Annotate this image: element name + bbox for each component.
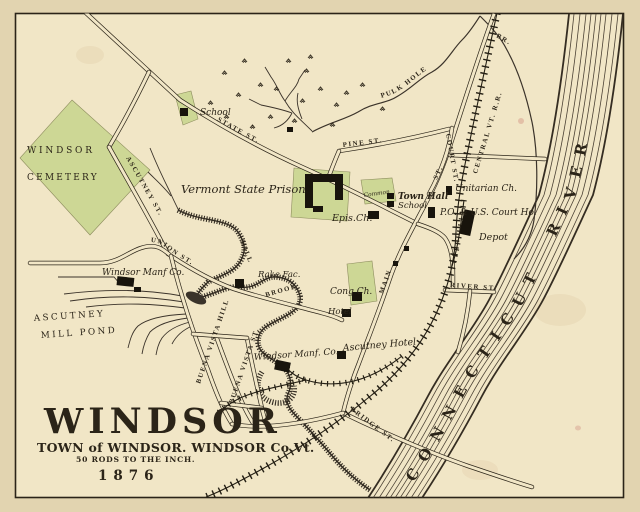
windsor-manf-north-label: Windsor Manf Co. — [102, 268, 184, 278]
post-office-courthouse-label: P.O. & U.S. Court Ho. — [439, 208, 537, 218]
school-nw-label: School — [200, 108, 231, 118]
building-rake-factory — [235, 279, 244, 288]
windsor-map-svg: CONNECTICUT RIVER PULK HOLE BR. CENTRAL … — [0, 0, 640, 512]
cemetery-label-line2: CEMETERY — [27, 173, 99, 183]
building-windsor-manf-north-2 — [134, 287, 141, 292]
building-school-nw — [180, 108, 188, 116]
cemetery-label-line1: WINDSOR — [27, 146, 95, 156]
map-page: CONNECTICUT RIVER PULK HOLE BR. CENTRAL … — [0, 0, 640, 512]
congregational-church-label: Cong Ch. — [330, 287, 372, 297]
building-small-main-2 — [393, 261, 398, 266]
unitarian-church-label: Unitarian Ch. — [455, 184, 517, 194]
depot-label: Depot — [478, 232, 508, 243]
hotel-label: Hotel — [327, 307, 352, 317]
school-label: School — [398, 201, 427, 211]
prison-label: Vermont State Prison — [181, 182, 306, 196]
map-year: 1876 — [98, 468, 160, 484]
building-small-main-1 — [404, 246, 409, 251]
building-post-office-courthouse — [428, 207, 435, 218]
map-subtitle: TOWN of WINDSOR. WINDSOR Co.Vt. — [37, 440, 315, 455]
map-scale-note: 50 RODS TO THE INCH. — [76, 455, 195, 464]
episcopal-church-label: Epis.Ch. — [331, 213, 372, 224]
map-title: WINDSOR — [43, 401, 282, 442]
building-small-state-st — [287, 127, 293, 132]
rake-factory-label: Rake Fac. — [257, 270, 300, 280]
building-school — [387, 201, 394, 207]
